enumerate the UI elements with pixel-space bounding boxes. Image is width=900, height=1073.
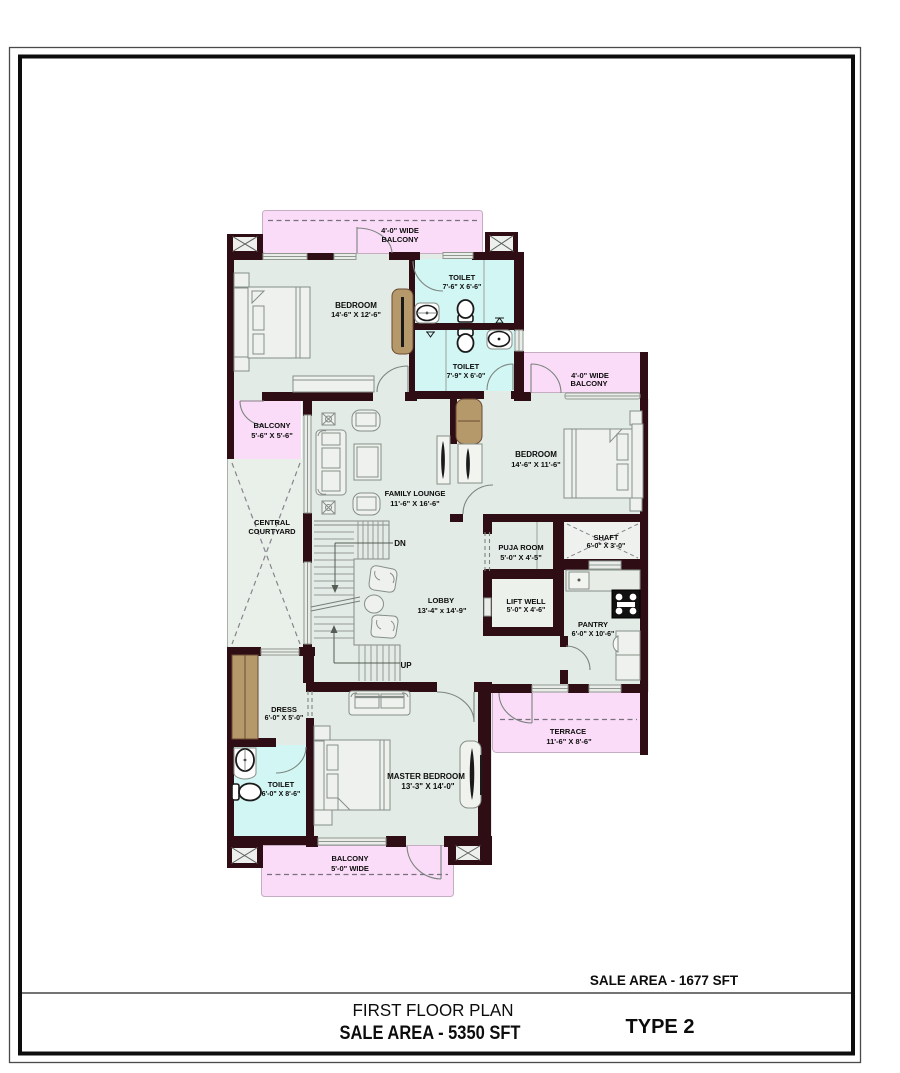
svg-text:14'-6" X 12'-6": 14'-6" X 12'-6" bbox=[331, 310, 381, 319]
svg-text:COURTYARD: COURTYARD bbox=[248, 527, 296, 536]
svg-text:TOILET: TOILET bbox=[449, 273, 476, 282]
svg-text:11'-6" X 16'-6": 11'-6" X 16'-6" bbox=[390, 499, 440, 508]
svg-text:6'-0" X 10'-6": 6'-0" X 10'-6" bbox=[572, 631, 615, 638]
svg-text:MASTER BEDROOM: MASTER BEDROOM bbox=[387, 772, 465, 781]
svg-text:DRESS: DRESS bbox=[271, 705, 297, 714]
svg-text:4'-0" WIDE: 4'-0" WIDE bbox=[381, 226, 419, 235]
svg-text:BALCONY: BALCONY bbox=[253, 421, 290, 430]
svg-text:TOILET: TOILET bbox=[268, 780, 295, 789]
svg-text:6'-0" X 5'-0": 6'-0" X 5'-0" bbox=[265, 715, 304, 722]
svg-text:6'-0" X 3'-0": 6'-0" X 3'-0" bbox=[587, 543, 626, 550]
svg-text:14'-6" X 11'-6": 14'-6" X 11'-6" bbox=[511, 460, 561, 469]
svg-text:13'-4" x 14'-9": 13'-4" x 14'-9" bbox=[417, 606, 466, 615]
svg-text:FIRST FLOOR PLAN: FIRST FLOOR PLAN bbox=[353, 1000, 514, 1020]
svg-text:PUJA ROOM: PUJA ROOM bbox=[498, 543, 543, 552]
svg-text:DN: DN bbox=[394, 539, 406, 548]
svg-text:UP: UP bbox=[400, 661, 412, 670]
svg-text:SHAFT: SHAFT bbox=[594, 533, 619, 542]
svg-text:TYPE 2: TYPE 2 bbox=[626, 1016, 695, 1038]
svg-text:SALE AREA - 5350 SFT: SALE AREA - 5350 SFT bbox=[340, 1023, 521, 1044]
svg-text:FAMILY LOUNGE: FAMILY LOUNGE bbox=[385, 489, 446, 498]
svg-text:5'-0" X 4'-5": 5'-0" X 4'-5" bbox=[500, 553, 542, 562]
svg-text:CENTRAL: CENTRAL bbox=[254, 518, 290, 527]
svg-text:BALCONY: BALCONY bbox=[331, 854, 368, 863]
svg-text:BALCONY: BALCONY bbox=[570, 379, 607, 388]
svg-text:6'-0" X 8'-6": 6'-0" X 8'-6" bbox=[262, 791, 301, 798]
svg-text:13'-3" X 14'-0": 13'-3" X 14'-0" bbox=[401, 782, 454, 791]
svg-text:BEDROOM: BEDROOM bbox=[515, 450, 557, 459]
svg-text:LIFT WELL: LIFT WELL bbox=[506, 597, 546, 606]
svg-text:7'-9" X 6'-0": 7'-9" X 6'-0" bbox=[447, 373, 486, 380]
svg-text:5'-0" X 4'-6": 5'-0" X 4'-6" bbox=[507, 607, 546, 614]
svg-text:TERRACE: TERRACE bbox=[550, 727, 586, 736]
svg-text:TOILET: TOILET bbox=[453, 362, 480, 371]
svg-text:11'-6" X 8'-6": 11'-6" X 8'-6" bbox=[546, 737, 592, 746]
svg-text:LOBBY: LOBBY bbox=[428, 596, 454, 605]
svg-text:5'-6" X 5'-6": 5'-6" X 5'-6" bbox=[251, 431, 293, 440]
svg-text:5'-0" WIDE: 5'-0" WIDE bbox=[331, 864, 369, 873]
svg-text:BALCONY: BALCONY bbox=[381, 235, 418, 244]
svg-text:SALE AREA - 1677 SFT: SALE AREA - 1677 SFT bbox=[590, 973, 739, 988]
svg-text:7'-6" X 6'-6": 7'-6" X 6'-6" bbox=[443, 284, 482, 291]
svg-text:PANTRY: PANTRY bbox=[578, 620, 608, 629]
svg-text:BEDROOM: BEDROOM bbox=[335, 301, 377, 310]
